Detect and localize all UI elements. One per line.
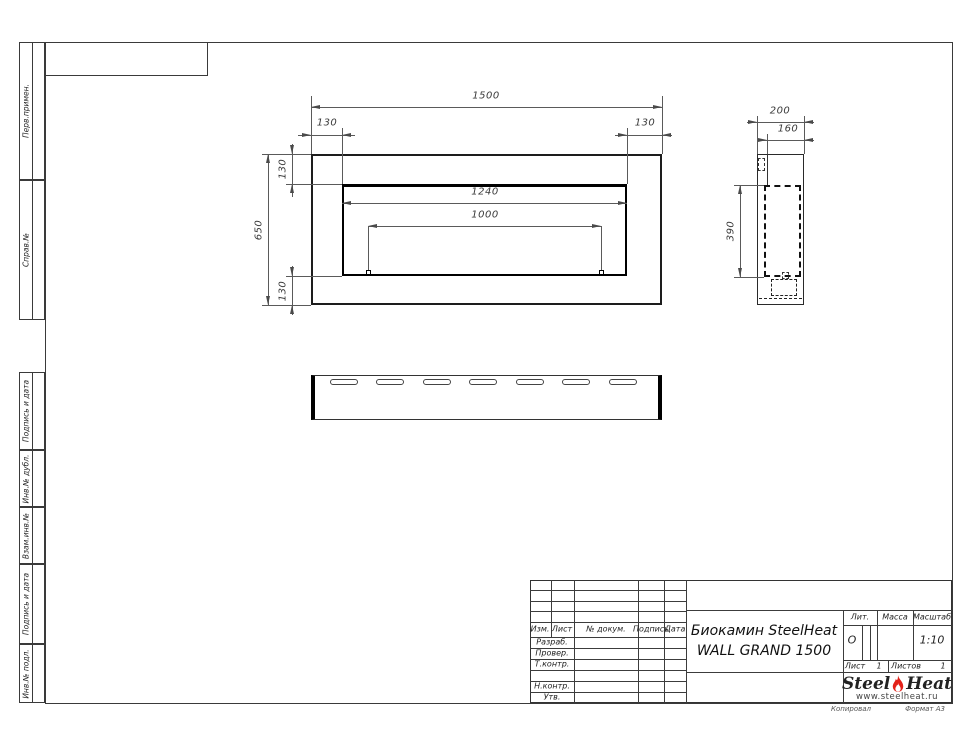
product-name-line2: WALL GRAND 1500 [697,643,831,659]
margin-label: Справ.№ [22,233,31,267]
margin-box-inv-podl: Инв.№ подл. [19,644,45,703]
grid-line [888,660,889,672]
grid-line [862,625,863,660]
arrowhead [266,296,270,305]
dimension-line [368,226,601,227]
lit-label: Лит. [851,613,869,622]
grid-line [530,622,686,623]
margin-label: Подпись и дата [22,380,31,442]
grid-line [870,625,871,660]
grid-line [686,580,687,703]
col-data: Дата [665,625,686,634]
burner-mark-right [599,270,604,275]
dim-front-height: 650 [254,220,265,241]
margin-label-col: Перв.примен. [20,43,33,179]
margin-label: Подпись и дата [22,573,31,635]
format-label: Формат А3 [905,705,945,713]
logo-url: www.steelheat.ru [856,692,938,702]
arrowhead [342,133,351,137]
margin-box-perv-primen: Перв.примен. [19,42,45,180]
col-list: Лист [552,625,572,634]
hidden-firebox [764,185,801,277]
margin-box-vzam-inv: Взам.инв.№ [19,507,45,564]
vent-slot [423,379,451,385]
grid-line [638,580,639,703]
lit-value: О [848,634,857,647]
arrowhead [738,185,742,194]
arrowhead [302,133,311,137]
arrowhead [653,105,662,109]
margin-box-podpis-data-1: Подпись и дата [19,372,45,450]
hidden-burner-block [771,279,797,296]
dim-side-depth: 200 [770,106,791,117]
dimension-line [268,154,269,305]
sheet-label: Лист [845,662,865,671]
arrowhead [266,154,270,163]
top-left-designation-box [46,43,208,76]
extension-line [342,128,343,184]
dim-front-width: 1500 [472,91,499,102]
grid-line [877,610,878,660]
scale-value: 1:10 [920,634,945,647]
extension-line [734,277,764,278]
product-name-line1: Биокамин SteelHeat [691,623,837,639]
dim-front-top-offset: 130 [278,159,289,180]
grid-line [664,580,665,703]
margin-box-podpis-data-2: Подпись и дата [19,564,45,644]
margin-label-col: Подпись и дата [20,565,33,643]
grid-line [530,670,686,671]
hidden-nozzle [782,272,789,279]
dimension-line [311,107,662,108]
sheets-value: 1 [940,662,945,671]
dim-front-left-offset: 130 [317,118,338,129]
arrowhead [592,224,601,228]
extension-line [262,305,311,306]
row-nkontr: Н.контр. [534,682,570,691]
arrowhead [758,138,767,142]
scale-label: Масштаб [913,613,951,622]
col-dokum: № докум. [586,625,625,634]
hidden-bracket [758,158,765,171]
arrowhead [618,201,627,205]
drawing-sheet: Перв.примен. Справ.№ Подпись и дата Инв.… [0,0,970,749]
arrowhead [804,120,813,124]
dim-front-bottom-offset: 130 [278,281,289,302]
grid-line [530,611,686,612]
margin-label-col: Инв.№ подл. [20,645,33,702]
row-razrab: Разраб. [536,638,567,647]
grid-line [574,580,575,703]
extension-line [627,128,628,184]
dim-opening-width: 1240 [471,187,498,198]
margin-label-col: Взам.инв.№ [20,508,33,563]
margin-box-inv-dubl: Инв.№ дубл. [19,450,45,507]
dim-burner-width: 1000 [471,210,498,221]
front-view-opening [342,184,627,276]
grid-line [686,610,952,611]
burner-mark-left [366,270,371,275]
extension-line [601,226,602,270]
mass-label: Масса [882,613,908,622]
arrowhead [290,184,294,193]
row-tkontr: Т.контр. [535,660,570,669]
margin-label-col: Инв.№ дубл. [20,451,33,506]
margin-label: Инв.№ дубл. [22,454,31,503]
arrowhead [368,224,377,228]
grid-line [530,601,686,602]
arrowhead [290,145,294,154]
grid-line [686,672,952,673]
dim-front-right-offset: 130 [635,118,656,129]
grid-line [530,590,686,591]
col-podpis: Подпись [633,625,669,634]
extension-line [286,184,342,185]
margin-label: Перв.примен. [22,84,31,138]
hidden-bottom-line [759,298,802,299]
vent-slot [516,379,544,385]
arrowhead [618,133,627,137]
arrowhead [738,268,742,277]
dim-side-inner-depth: 160 [778,124,799,135]
logo-text-heat: Heat [906,674,952,694]
sheet-value: 1 [876,662,881,671]
margin-label-col: Справ.№ [20,181,33,319]
col-izm: Изм. [531,625,550,634]
extension-line [286,276,342,277]
margin-box-sprav: Справ.№ [19,180,45,320]
margin-label-col: Подпись и дата [20,373,33,449]
logo-text-steel: Steel [842,674,890,694]
steelheat-logo: Steel Heat [842,674,952,694]
arrowhead [290,305,294,314]
dim-firebox-height: 390 [726,221,737,242]
vent-slot [562,379,590,385]
dimension-line [342,203,627,204]
grid-line [843,625,952,626]
margin-label: Взам.инв.№ [22,512,31,558]
vent-slot [330,379,358,385]
extension-line [368,226,369,270]
row-utv: Утв. [544,693,561,702]
vent-slot [609,379,637,385]
arrowhead [804,138,813,142]
arrowhead [342,201,351,205]
vent-slot [469,379,497,385]
arrowhead [662,133,671,137]
arrowhead [748,120,757,124]
margin-label: Инв.№ подл. [22,649,31,698]
sheets-label: Листов [891,662,921,671]
arrowhead [311,105,320,109]
dimension-line [740,185,741,277]
extension-line [767,134,768,154]
vent-slot [376,379,404,385]
side-inner-edge [767,154,768,185]
arrowhead [290,267,294,276]
extension-line [662,96,663,154]
flame-icon [891,675,905,693]
kopiroval-label: Копировал [831,705,871,713]
row-prover: Провер. [535,649,568,658]
